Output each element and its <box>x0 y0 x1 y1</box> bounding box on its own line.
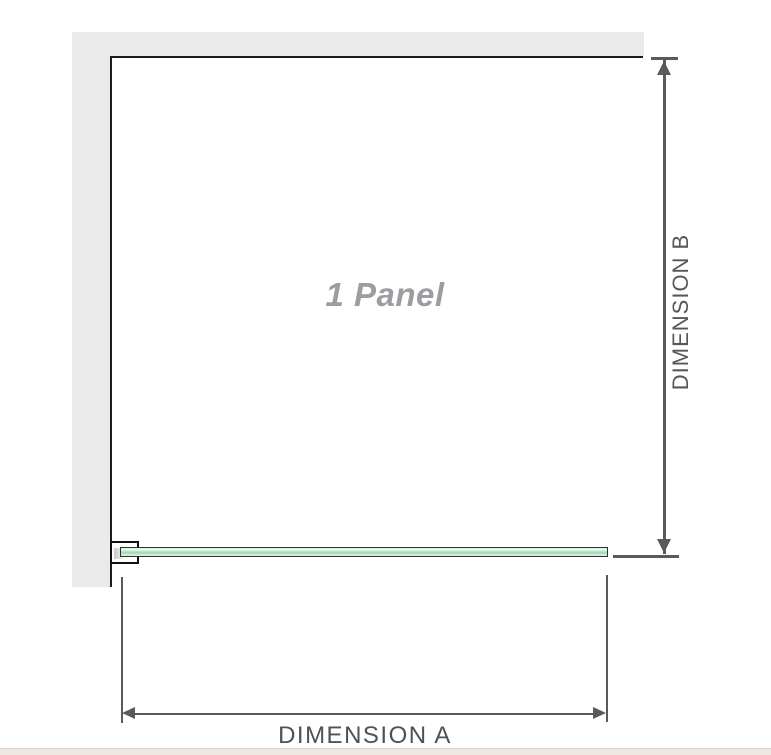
dimension-b-bottom-cap <box>613 555 679 558</box>
dimension-a-label: DIMENSION A <box>215 722 515 750</box>
bottom-page-strip <box>0 748 771 755</box>
glass-panel-bar <box>120 547 608 557</box>
dimension-a-right-extension-line <box>606 575 608 722</box>
wall-left-strip <box>72 32 110 587</box>
arrowhead-right-icon <box>593 707 606 719</box>
panel-label: 1 Panel <box>235 276 535 314</box>
arrowhead-left-icon <box>122 707 135 719</box>
dimension-b-line <box>663 60 666 554</box>
dimension-a-line <box>131 713 598 716</box>
dimension-b-label: DIMENSION B <box>668 202 694 422</box>
arrowhead-up-icon <box>657 61 671 75</box>
arrowhead-down-icon <box>657 539 671 553</box>
panel-dimension-diagram: 1 Panel DIMENSION B DIMENSION A <box>0 0 771 755</box>
panel-outline <box>110 56 643 587</box>
wall-top-strip <box>72 32 644 57</box>
dimension-a-left-extension-line <box>121 577 123 723</box>
